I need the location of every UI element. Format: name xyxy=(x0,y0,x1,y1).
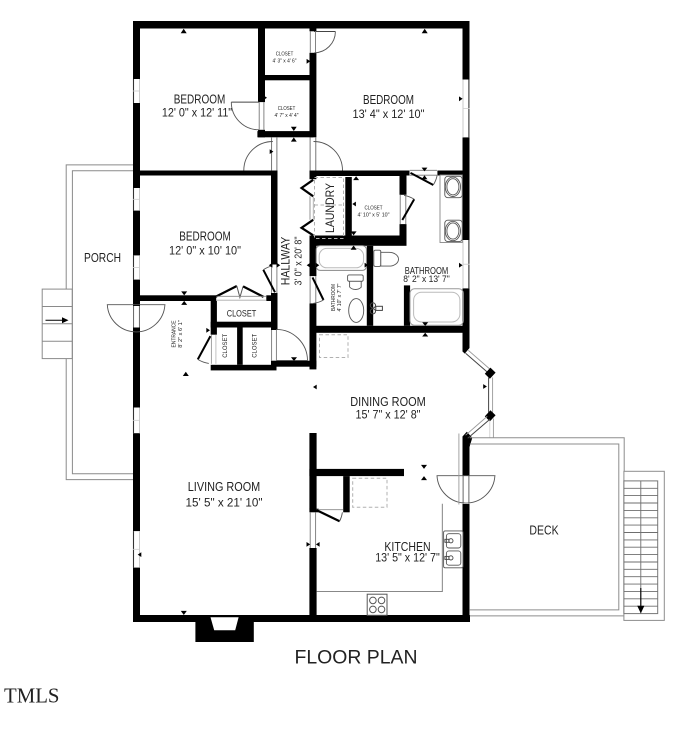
svg-text:BATHROOM: BATHROOM xyxy=(331,284,337,311)
svg-text:4' 10" x 5' 10": 4' 10" x 5' 10" xyxy=(358,213,390,219)
svg-text:CLOSET: CLOSET xyxy=(223,333,229,357)
svg-text:8' 2" x 13' 7": 8' 2" x 13' 7" xyxy=(403,274,450,285)
svg-text:4' 10" x 7' 7": 4' 10" x 7' 7" xyxy=(337,283,343,311)
svg-text:BEDROOM: BEDROOM xyxy=(363,92,414,107)
svg-text:8' 2" x 6' 1": 8' 2" x 6' 1" xyxy=(178,320,184,348)
svg-text:TMLS: TMLS xyxy=(4,684,60,708)
svg-text:FLOOR PLAN: FLOOR PLAN xyxy=(295,648,418,669)
svg-text:12' 0" x 12' 11": 12' 0" x 12' 11" xyxy=(162,107,232,119)
svg-text:ENTRANCE: ENTRANCE xyxy=(172,320,178,347)
svg-text:12' 0" x 10' 10": 12' 0" x 10' 10" xyxy=(169,245,241,257)
svg-text:15' 5" x 21' 10": 15' 5" x 21' 10" xyxy=(186,497,263,509)
svg-text:CLOSET: CLOSET xyxy=(365,206,384,212)
svg-text:PORCH: PORCH xyxy=(84,251,121,265)
svg-text:4' 7" x 4' 4": 4' 7" x 4' 4" xyxy=(275,113,299,119)
svg-text:BEDROOM: BEDROOM xyxy=(174,92,226,107)
svg-text:13' 5" x 12' 7": 13' 5" x 12' 7" xyxy=(375,553,440,565)
svg-text:CLOSET: CLOSET xyxy=(227,309,257,320)
svg-text:CLOSET: CLOSET xyxy=(253,333,259,357)
svg-text:15' 7" x 12' 8": 15' 7" x 12' 8" xyxy=(356,409,421,421)
svg-text:LIVING ROOM: LIVING ROOM xyxy=(188,479,261,494)
svg-text:LAUNDRY: LAUNDRY xyxy=(323,183,337,233)
svg-text:DECK: DECK xyxy=(529,524,559,538)
svg-text:13' 4" x 12' 10": 13' 4" x 12' 10" xyxy=(353,109,425,121)
svg-text:4' 3" x 4' 6": 4' 3" x 4' 6" xyxy=(273,58,297,64)
svg-text:HALLWAY: HALLWAY xyxy=(279,237,293,286)
svg-text:DINING ROOM: DINING ROOM xyxy=(350,394,426,409)
svg-text:CLOSET: CLOSET xyxy=(276,52,294,58)
svg-text:CLOSET: CLOSET xyxy=(278,106,296,112)
svg-text:BEDROOM: BEDROOM xyxy=(179,229,231,244)
svg-text:3' 0" x 20' 8": 3' 0" x 20' 8" xyxy=(293,236,305,285)
